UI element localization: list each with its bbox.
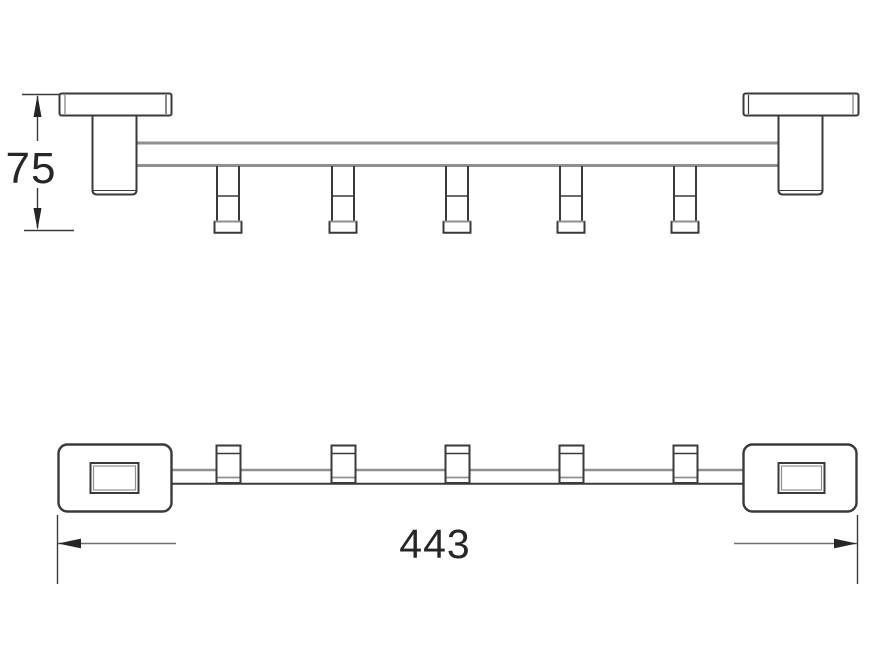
hook-plan-3: [446, 446, 470, 484]
towel-rail-drawing: 75: [0, 0, 889, 647]
hook-front-3: [443, 166, 472, 234]
arrow-left-icon: [58, 539, 81, 549]
right-post-section: [779, 463, 825, 493]
hook-front-5: [671, 166, 700, 234]
right-bracket-plan: [744, 445, 857, 512]
left-bracket-cap: [60, 94, 172, 116]
length-dimension-label: 443: [399, 521, 470, 567]
hook-plan-2: [332, 446, 356, 484]
hook-front-4: [557, 166, 586, 234]
hook-plan-1: [217, 446, 241, 484]
left-bracket-post: [93, 116, 137, 195]
length-dimension: 443: [58, 515, 858, 584]
hook-front-2: [329, 166, 358, 234]
technical-drawing-page: 75: [0, 0, 889, 647]
right-bracket-post: [779, 116, 823, 195]
right-bracket-cap: [744, 94, 859, 116]
front-view: 75: [6, 94, 859, 234]
hook-front-1: [214, 166, 243, 234]
hook-plan-4: [560, 446, 584, 484]
hook-plan-5: [674, 446, 698, 484]
left-bracket-plan: [59, 445, 172, 512]
plan-view: 443: [58, 445, 858, 585]
arrow-down-icon: [34, 208, 42, 230]
arrow-right-icon: [834, 539, 857, 549]
arrow-up-icon: [34, 95, 42, 117]
height-dimension-label: 75: [6, 144, 57, 193]
left-post-section: [91, 463, 139, 493]
